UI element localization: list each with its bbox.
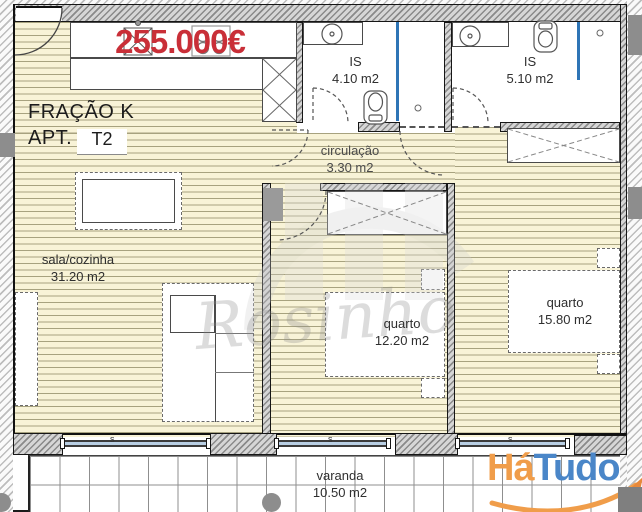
room-label-bedroom1: quarto 12.20 m2: [352, 316, 452, 350]
fraction-label: FRAÇÃO K: [28, 101, 134, 124]
slider-cap: [386, 438, 391, 449]
slider-cap: [274, 438, 279, 449]
room-label-bedroom2: quarto 15.80 m2: [525, 295, 605, 329]
room-name: circulação: [302, 143, 398, 160]
kitchen-tall-cabinet: [262, 58, 297, 122]
window-tag: s: [508, 434, 513, 444]
wall-kitchen-bathroom1: [296, 22, 303, 123]
room-label-living: sala/cozinha 31.20 m2: [18, 252, 138, 286]
sliding-door-living: [63, 440, 210, 447]
pier-bottom-left: [13, 433, 63, 455]
nightstand: [597, 248, 620, 268]
wall-top: [13, 4, 627, 22]
hatudo-logo: HáTudo: [487, 447, 620, 490]
balcony-column: [262, 493, 281, 512]
sliding-door-bedroom1: [277, 440, 389, 447]
dining-table: [82, 179, 175, 223]
room-name: sala/cozinha: [18, 252, 138, 269]
wall-bathroom1-bottom: [358, 122, 400, 132]
shower-screen-bathroom2: [577, 22, 580, 80]
room-area: 3.30 m2: [302, 160, 398, 177]
wall-marker-left: [0, 133, 15, 157]
logo-part-1: Há: [487, 447, 534, 489]
room-area: 10.50 m2: [298, 485, 382, 502]
corner-block-bottom-right: [618, 487, 642, 512]
wall-right: [620, 4, 627, 455]
wall-marker-hall: [263, 188, 283, 221]
sideboard: [15, 292, 38, 406]
slider-cap: [206, 438, 211, 449]
vanity-bathroom2: [452, 22, 509, 47]
room-area: 12.20 m2: [352, 333, 452, 350]
wardrobe-bedroom2: [507, 128, 620, 163]
sofa-seam: [215, 372, 254, 373]
logo-part-2: Tudo: [534, 447, 620, 489]
exterior-band-left: [0, 0, 13, 512]
room-label-balcony: varanda 10.50 m2: [298, 468, 382, 502]
door-opening-dash-1: [400, 126, 444, 128]
room-name: IS: [498, 54, 562, 71]
room-name: quarto: [352, 316, 452, 333]
room-area: 15.80 m2: [525, 312, 605, 329]
pier-bottom-mid1: [210, 433, 277, 455]
room-label-bathroom2: IS 5.10 m2: [498, 54, 562, 88]
wall-between-bathrooms: [444, 22, 452, 132]
room-name: quarto: [525, 295, 605, 312]
price-label: 255.000€: [98, 23, 262, 61]
room-area: 31.20 m2: [18, 269, 138, 286]
floorplan-canvas: s s s: [0, 0, 642, 512]
wardrobe-bedroom1: [327, 191, 447, 235]
room-name: varanda: [298, 468, 382, 485]
wall-bedroom1-top: [320, 183, 447, 191]
room-name: IS: [328, 54, 383, 71]
nightstand: [597, 354, 620, 374]
slider-cap: [60, 438, 65, 449]
window-tag: s: [328, 434, 333, 444]
vanity-bathroom1: [303, 22, 363, 45]
door-opening-dash-2: [452, 126, 500, 128]
wall-bottom-line: [13, 433, 627, 435]
entrance-door-opening: [16, 6, 62, 21]
room-label-bathroom1: IS 4.10 m2: [328, 54, 383, 88]
apt-type-box: T2: [77, 129, 127, 155]
room-area: 5.10 m2: [498, 71, 562, 88]
nightstand: [421, 378, 445, 398]
window-tag: s: [110, 434, 115, 444]
pier-bottom-mid2: [395, 433, 458, 455]
kitchen-counter-front: [70, 58, 263, 90]
room-label-hallway: circulação 3.30 m2: [302, 143, 398, 177]
room-area: 4.10 m2: [328, 71, 383, 88]
shower-screen-bathroom1: [396, 22, 399, 121]
slider-cap: [455, 438, 460, 449]
wall-marker-right-mid: [628, 187, 642, 219]
apt-label: APT.: [28, 127, 72, 150]
exterior-band-right: [627, 0, 642, 512]
sliding-door-bedroom2: [458, 440, 568, 447]
wall-marker-right-top: [628, 15, 642, 55]
